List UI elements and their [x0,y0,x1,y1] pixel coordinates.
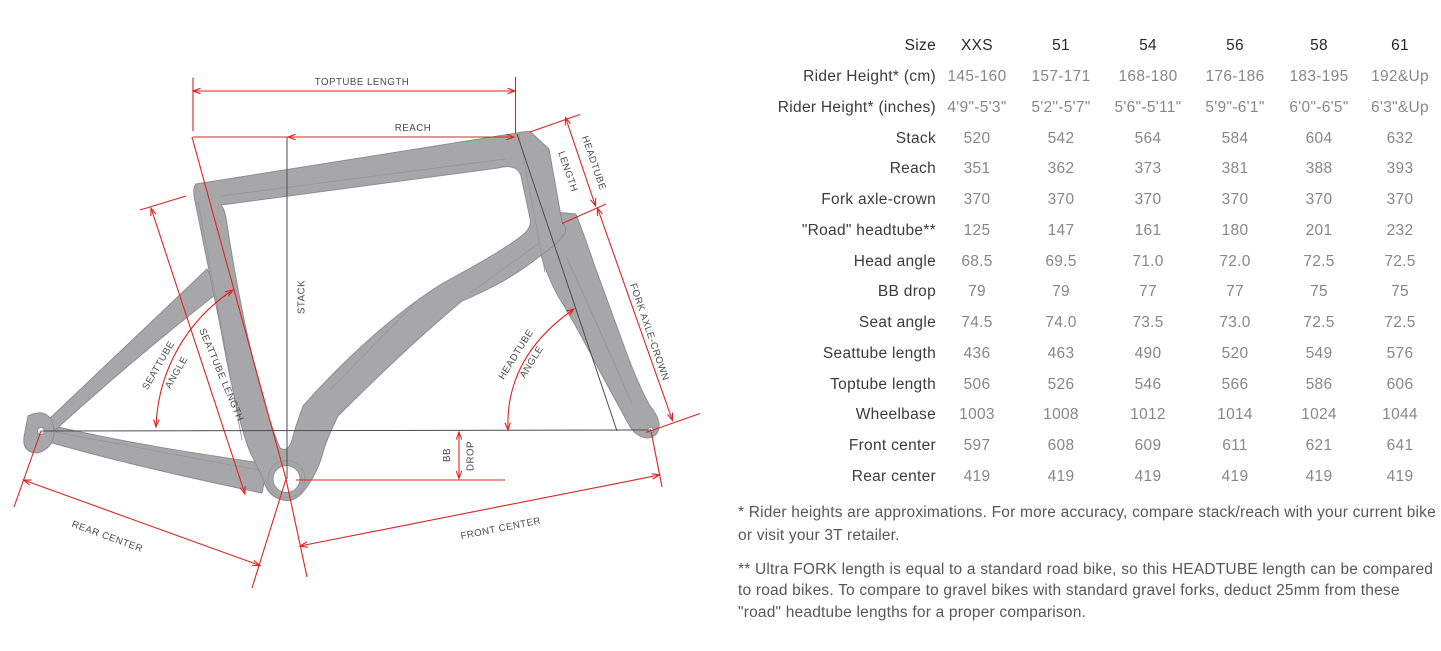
svg-text:LENGTH: LENGTH [555,150,579,194]
svg-text:HEADTUBE: HEADTUBE [579,135,608,192]
svg-text:TOPTUBE LENGTH: TOPTUBE LENGTH [315,77,410,88]
svg-text:REACH: REACH [395,123,431,134]
svg-text:REAR CENTER: REAR CENTER [70,519,144,555]
svg-text:BB: BB [442,448,453,462]
svg-text:DROP: DROP [466,441,477,471]
svg-text:FORK AXLE-CROWN: FORK AXLE-CROWN [627,282,671,382]
svg-text:FRONT CENTER: FRONT CENTER [460,516,542,543]
svg-text:STACK: STACK [296,280,307,314]
